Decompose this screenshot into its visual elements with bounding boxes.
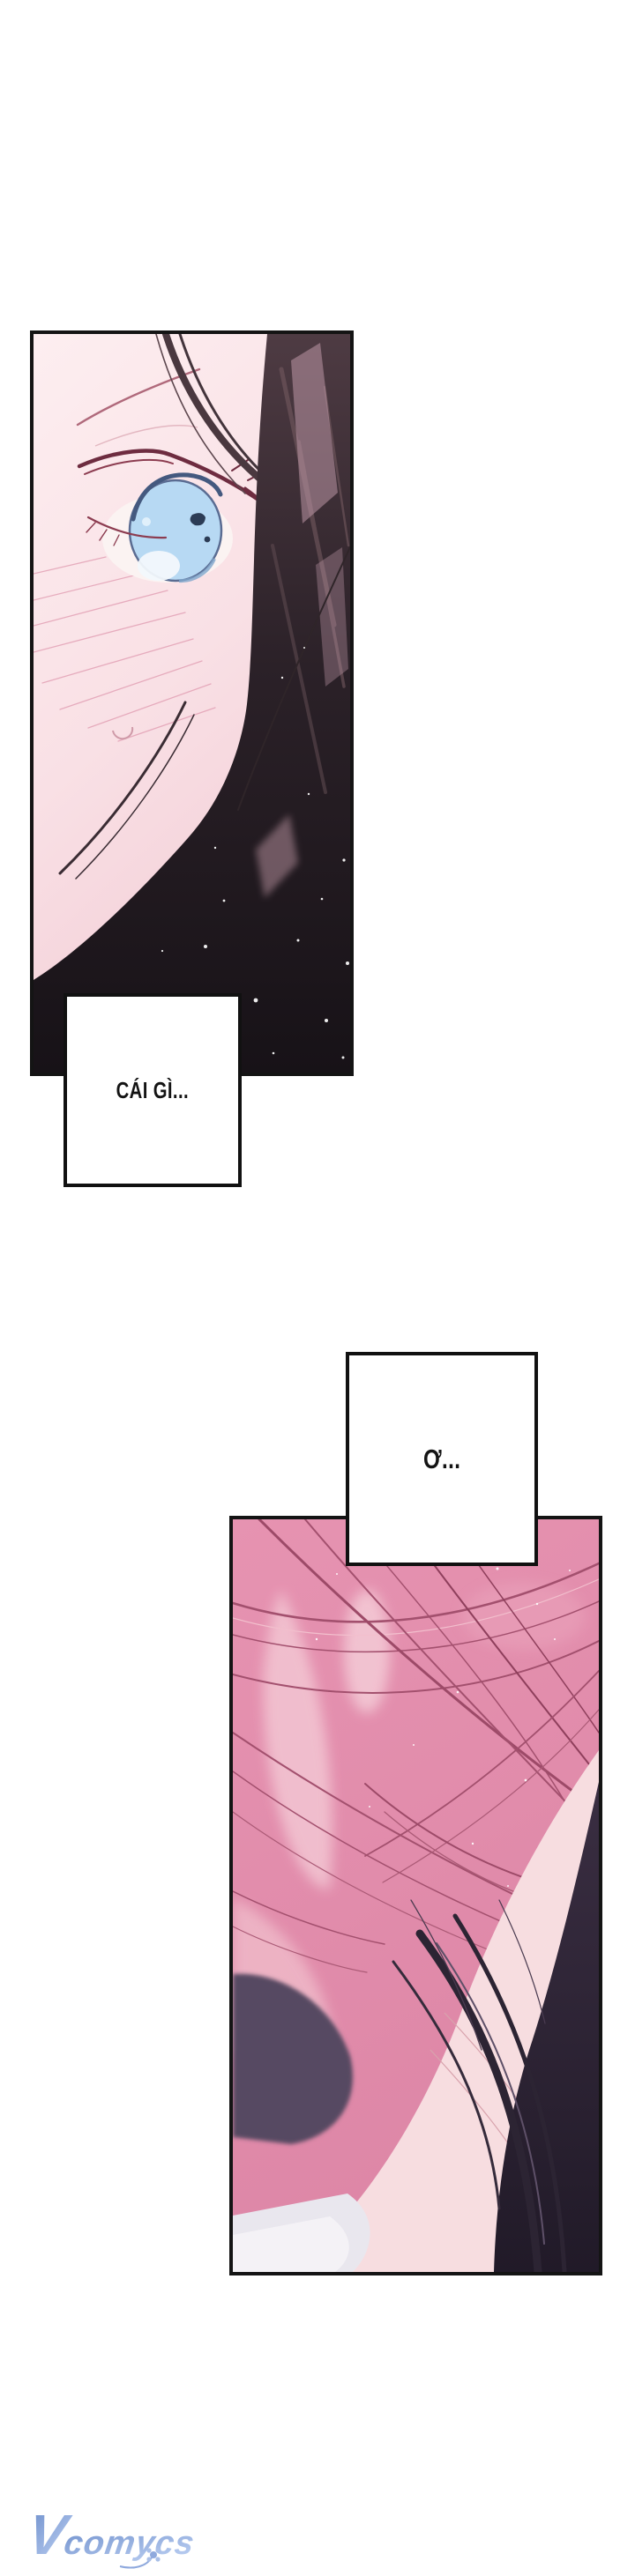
iris-highlight [138,551,180,581]
speech-box-2: Ơ... [346,1352,538,1566]
speech-text-1: CÁI GÌ... [116,1077,189,1104]
panel-eye-closeup [30,330,354,1076]
watermark-rest: comycs [62,2524,198,2562]
watermark-text-group: V comycs [24,2503,200,2566]
pink-hair-art [233,1519,599,2272]
eye-closeup-art [34,334,350,1073]
webtoon-page: { "page": {"background": "#ffffff"}, "sp… [0,0,635,2576]
speech-text-2: Ơ... [423,1444,460,1475]
vcomycs-logo: V comycs [21,2499,233,2573]
panel-pink-hair-closeup [229,1516,602,2275]
vcomycs-watermark: V comycs [21,2499,233,2573]
speech-box-1: CÁI GÌ... [63,993,242,1187]
